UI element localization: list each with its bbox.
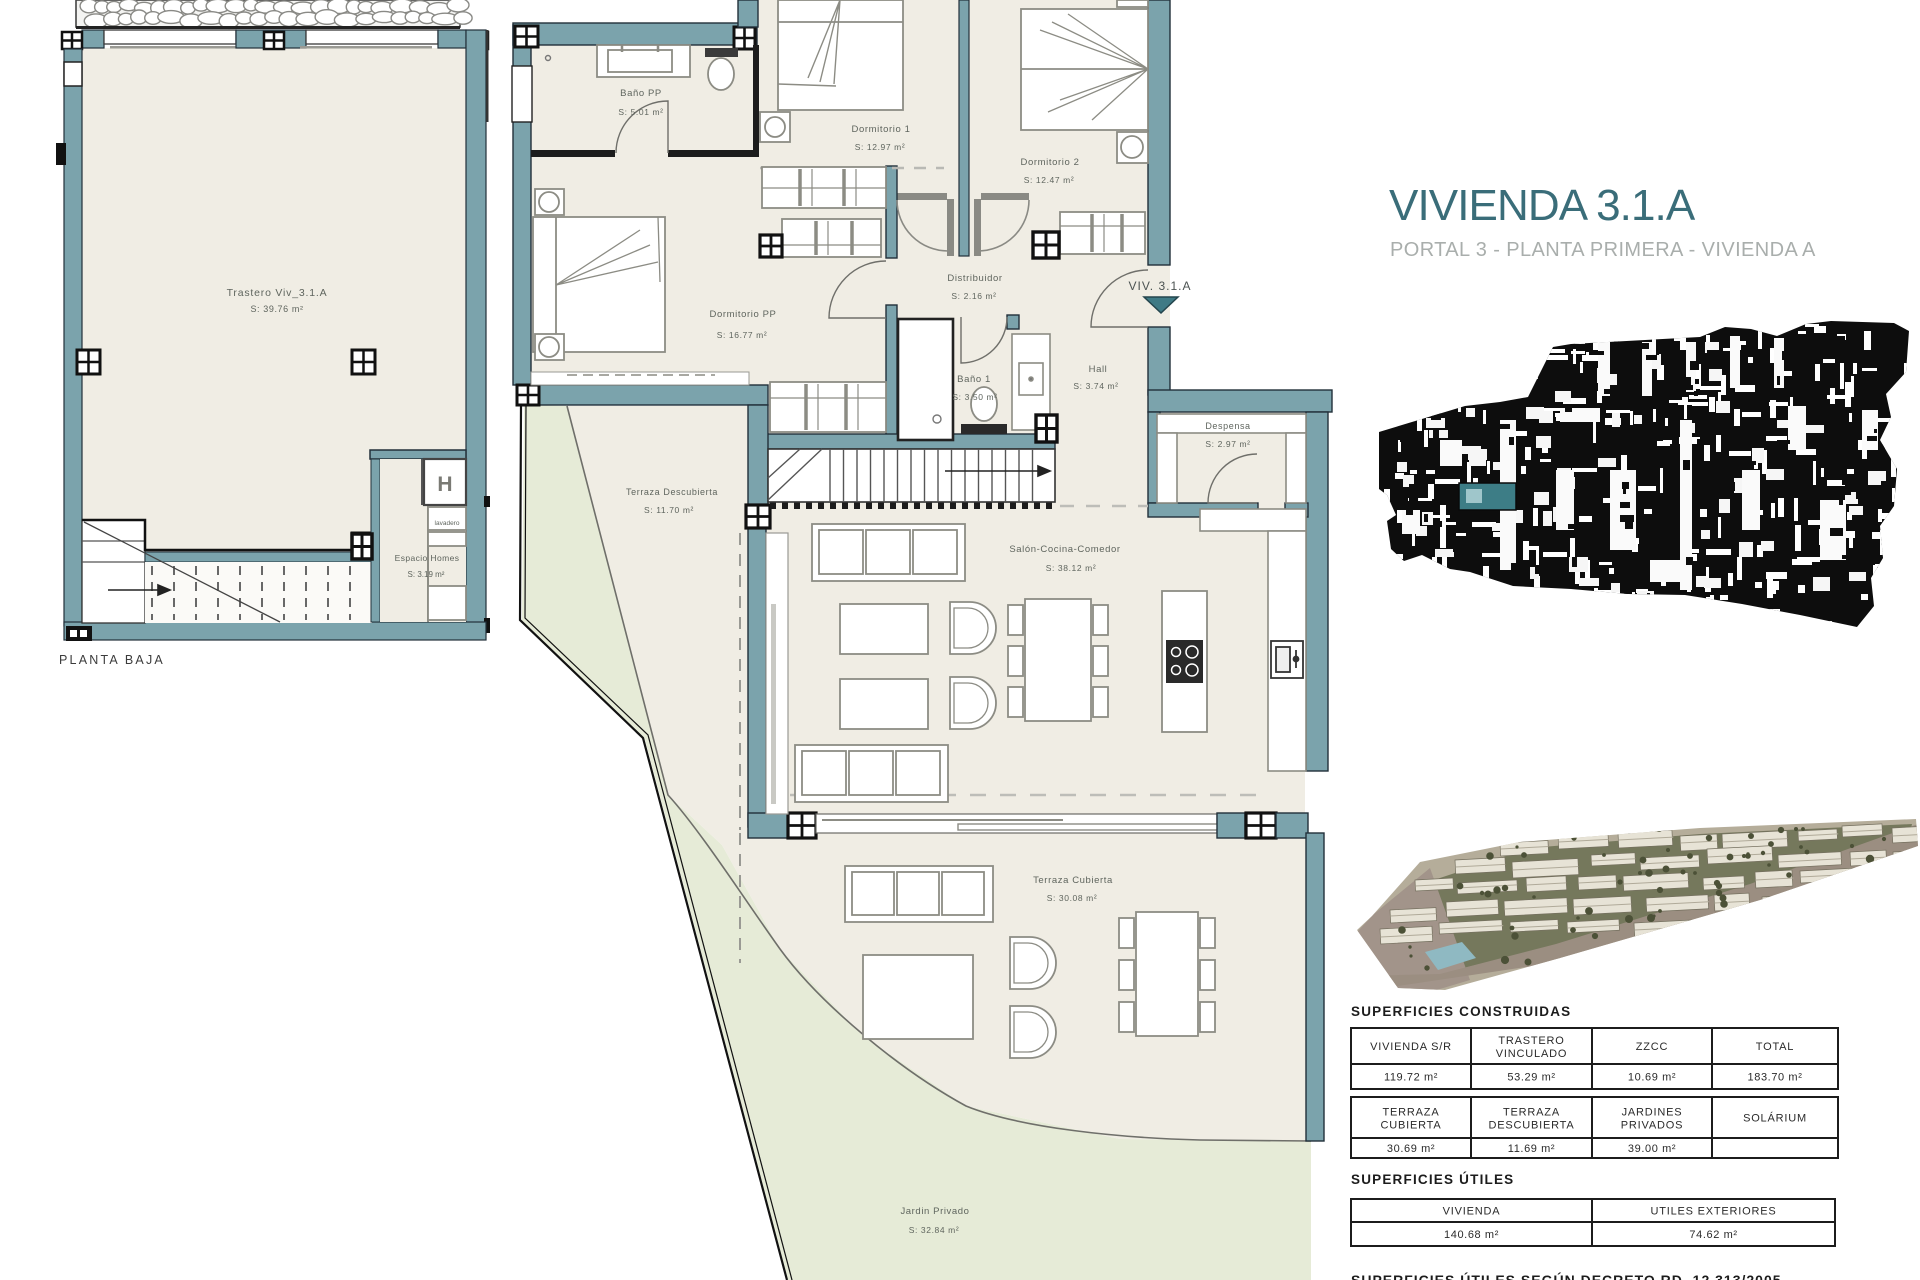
svg-text:PRIVADOS: PRIVADOS bbox=[1621, 1120, 1683, 1132]
svg-text:S: 2.16 m²: S: 2.16 m² bbox=[951, 291, 996, 301]
svg-text:S: 12.47 m²: S: 12.47 m² bbox=[1024, 175, 1075, 185]
svg-text:S: 11.70 m²: S: 11.70 m² bbox=[644, 505, 694, 515]
svg-text:Trastero Viv_3.1.A: Trastero Viv_3.1.A bbox=[227, 287, 328, 299]
svg-text:S: 30.08 m²: S: 30.08 m² bbox=[1047, 893, 1098, 903]
svg-text:S: 16.77 m²: S: 16.77 m² bbox=[717, 330, 768, 340]
svg-text:VIVIENDA S/R: VIVIENDA S/R bbox=[1370, 1041, 1452, 1053]
svg-text:39.00 m²: 39.00 m² bbox=[1628, 1143, 1676, 1155]
svg-text:S: 12.97 m²: S: 12.97 m² bbox=[855, 142, 906, 152]
svg-text:74.62 m²: 74.62 m² bbox=[1689, 1229, 1737, 1241]
svg-text:TERRAZA: TERRAZA bbox=[1383, 1107, 1440, 1119]
svg-text:Dormitorio PP: Dormitorio PP bbox=[710, 309, 777, 320]
svg-text:S: 32.84 m²: S: 32.84 m² bbox=[909, 1225, 960, 1235]
svg-text:119.72 m²: 119.72 m² bbox=[1384, 1072, 1438, 1084]
svg-text:Espacio Homes: Espacio Homes bbox=[395, 553, 460, 563]
svg-text:VIVIENDA 3.1.A: VIVIENDA 3.1.A bbox=[1389, 181, 1696, 230]
svg-text:S: 39.76 m²: S: 39.76 m² bbox=[250, 304, 303, 314]
svg-text:VIV. 3.1.A: VIV. 3.1.A bbox=[1129, 279, 1192, 293]
svg-text:S: 3.19 m²: S: 3.19 m² bbox=[408, 570, 445, 579]
svg-text:S: 5.01 m²: S: 5.01 m² bbox=[618, 107, 663, 117]
svg-text:TRASTERO: TRASTERO bbox=[1498, 1035, 1564, 1047]
svg-text:Jardin Privado: Jardin Privado bbox=[900, 1206, 969, 1217]
svg-text:TOTAL: TOTAL bbox=[1756, 1041, 1794, 1053]
svg-text:Baño PP: Baño PP bbox=[620, 88, 662, 99]
svg-text:CUBIERTA: CUBIERTA bbox=[1380, 1120, 1441, 1132]
svg-text:30.69 m²: 30.69 m² bbox=[1387, 1143, 1435, 1155]
svg-text:Baño 1: Baño 1 bbox=[957, 374, 991, 385]
svg-text:140.68 m²: 140.68 m² bbox=[1444, 1229, 1499, 1241]
svg-text:S: 3.74 m²: S: 3.74 m² bbox=[1073, 381, 1118, 391]
svg-text:SOLÁRIUM: SOLÁRIUM bbox=[1743, 1112, 1807, 1125]
svg-text:11.69 m²: 11.69 m² bbox=[1508, 1143, 1555, 1155]
svg-text:Despensa: Despensa bbox=[1205, 421, 1250, 431]
svg-text:VINCULADO: VINCULADO bbox=[1496, 1048, 1567, 1060]
svg-text:ZZCC: ZZCC bbox=[1636, 1041, 1669, 1053]
svg-text:Terraza Cubierta: Terraza Cubierta bbox=[1033, 875, 1113, 886]
svg-text:Dormitorio 2: Dormitorio 2 bbox=[1021, 157, 1080, 168]
svg-text:H: H bbox=[437, 473, 452, 496]
svg-text:VIVIENDA: VIVIENDA bbox=[1443, 1206, 1501, 1218]
svg-text:Hall: Hall bbox=[1089, 364, 1108, 375]
svg-text:TERRAZA: TERRAZA bbox=[1503, 1107, 1560, 1119]
svg-text:PORTAL 3 - PLANTA PRIMERA - VI: PORTAL 3 - PLANTA PRIMERA - VIVIENDA A bbox=[1390, 239, 1816, 261]
svg-text:Dormitorio 1: Dormitorio 1 bbox=[852, 124, 911, 135]
svg-text:10.69 m²: 10.69 m² bbox=[1628, 1072, 1676, 1084]
svg-text:S: 3.50 m²: S: 3.50 m² bbox=[952, 392, 997, 402]
svg-text:lavadero: lavadero bbox=[435, 520, 460, 527]
svg-text:S: 38.12 m²: S: 38.12 m² bbox=[1046, 563, 1097, 573]
svg-text:DESCUBIERTA: DESCUBIERTA bbox=[1488, 1120, 1574, 1132]
svg-text:Terraza Descubierta: Terraza Descubierta bbox=[626, 487, 718, 497]
svg-text:Distribuidor: Distribuidor bbox=[947, 273, 1002, 284]
svg-text:S: 2.97 m²: S: 2.97 m² bbox=[1205, 439, 1250, 449]
svg-text:SUPERFICIES ÚTILES: SUPERFICIES ÚTILES bbox=[1351, 1172, 1514, 1187]
svg-text:53.29 m²: 53.29 m² bbox=[1507, 1072, 1555, 1084]
svg-text:SUPERFICIES ÚTILES SEGÚN DECRE: SUPERFICIES ÚTILES SEGÚN DECRETO RD. 12 … bbox=[1351, 1271, 1782, 1280]
svg-text:183.70 m²: 183.70 m² bbox=[1748, 1072, 1803, 1084]
svg-text:UTILES EXTERIORES: UTILES EXTERIORES bbox=[1650, 1206, 1776, 1218]
svg-text:Salón-Cocina-Comedor: Salón-Cocina-Comedor bbox=[1009, 544, 1120, 555]
svg-text:SUPERFICIES CONSTRUIDAS: SUPERFICIES CONSTRUIDAS bbox=[1351, 1004, 1571, 1019]
svg-text:PLANTA BAJA: PLANTA BAJA bbox=[59, 653, 165, 667]
svg-text:JARDINES: JARDINES bbox=[1622, 1107, 1683, 1119]
